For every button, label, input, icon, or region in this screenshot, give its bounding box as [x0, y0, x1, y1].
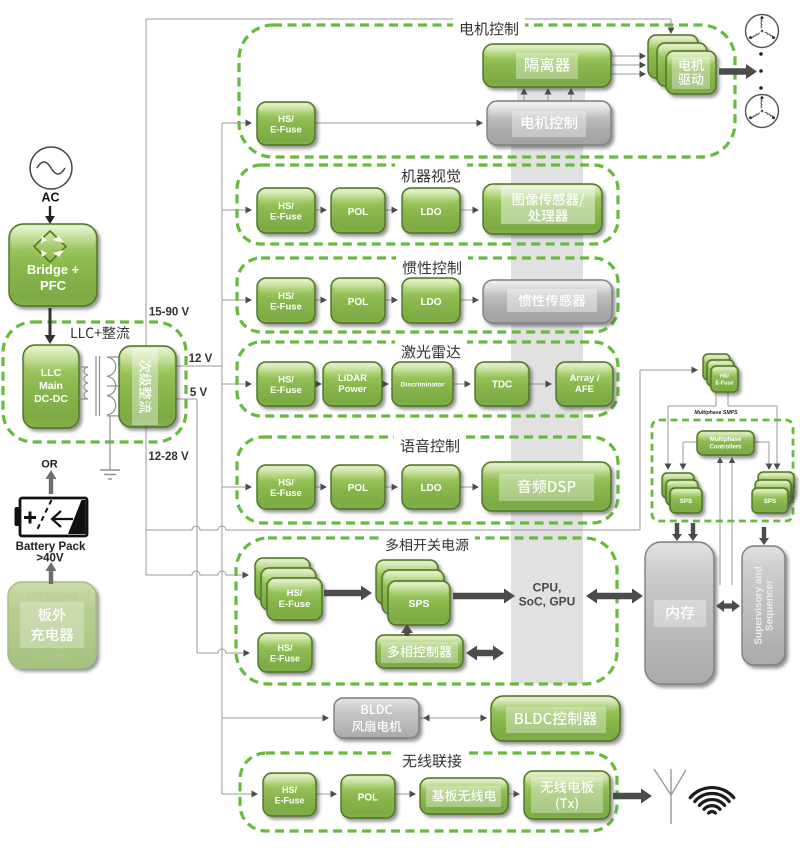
- svg-text:12-28 V: 12-28 V: [148, 451, 189, 463]
- svg-text:LDO: LDO: [420, 483, 441, 494]
- svg-text:Power: Power: [338, 384, 367, 395]
- svg-text:LDO: LDO: [420, 297, 441, 308]
- svg-text:Supervisory and: Supervisory and: [754, 566, 765, 644]
- svg-text:AFE: AFE: [575, 384, 594, 395]
- svg-text:SPS: SPS: [680, 498, 692, 505]
- svg-text:PFC: PFC: [40, 278, 67, 293]
- svg-text:12 V: 12 V: [189, 353, 213, 365]
- svg-text:SPS: SPS: [764, 498, 776, 505]
- svg-text:charger: charger: [32, 651, 73, 663]
- svg-text:POL: POL: [348, 207, 369, 218]
- svg-text:Main: Main: [39, 380, 63, 392]
- svg-text:15-90 V: 15-90 V: [149, 307, 190, 319]
- svg-text:E-Fuse: E-Fuse: [270, 385, 302, 396]
- svg-text:Array /: Array /: [569, 373, 599, 384]
- svg-text:DC-DC: DC-DC: [34, 393, 68, 405]
- svg-text:Sequencer: Sequencer: [765, 580, 776, 631]
- svg-text:HS/: HS/: [278, 375, 294, 386]
- svg-text:>40V: >40V: [36, 553, 64, 565]
- svg-text:HS/: HS/: [278, 201, 294, 212]
- svg-text:POL: POL: [348, 297, 369, 308]
- svg-text:HS/: HS/: [720, 374, 729, 380]
- svg-text:HS/: HS/: [282, 785, 298, 795]
- svg-text:Multiphase SMPS: Multiphase SMPS: [694, 410, 738, 416]
- svg-text:OR: OR: [41, 459, 58, 471]
- svg-text:AC: AC: [41, 191, 59, 205]
- svg-text:5 V: 5 V: [190, 387, 208, 399]
- svg-text:LDO: LDO: [420, 207, 441, 218]
- svg-text:HS/: HS/: [278, 114, 294, 125]
- svg-text:HS/: HS/: [278, 478, 294, 489]
- svg-text:SPS: SPS: [408, 598, 429, 610]
- svg-text:E-Fuse: E-Fuse: [270, 488, 302, 499]
- svg-text:E-Fuse: E-Fuse: [270, 125, 302, 136]
- svg-text:HS/: HS/: [287, 588, 303, 599]
- svg-text:E-Fuse: E-Fuse: [716, 381, 734, 387]
- svg-text:E-Fuse: E-Fuse: [270, 302, 302, 313]
- svg-text:CPU,: CPU,: [533, 581, 562, 595]
- svg-text:Multiphase: Multiphase: [710, 437, 742, 443]
- svg-text:Battery Pack: Battery Pack: [16, 541, 86, 553]
- svg-text:SoC, GPU: SoC, GPU: [519, 595, 576, 609]
- svg-text:Controllers: Controllers: [709, 445, 742, 451]
- svg-text:LLC: LLC: [41, 367, 62, 379]
- svg-text:POL: POL: [358, 793, 379, 804]
- svg-text:HS/: HS/: [278, 291, 294, 302]
- svg-text:E-Fuse: E-Fuse: [270, 654, 300, 664]
- svg-text:TDC: TDC: [492, 380, 513, 391]
- svg-text:HS/: HS/: [277, 643, 293, 653]
- svg-text:E-Fuse: E-Fuse: [270, 212, 302, 223]
- svg-text:Off-Board: Off-Board: [26, 591, 77, 603]
- svg-text:Bridge +: Bridge +: [27, 262, 80, 277]
- svg-text:Discriminator: Discriminator: [401, 382, 445, 389]
- svg-text:LiDAR: LiDAR: [338, 373, 367, 384]
- svg-text:E-Fuse: E-Fuse: [279, 599, 311, 610]
- svg-text:E-Fuse: E-Fuse: [274, 796, 304, 806]
- svg-text:POL: POL: [348, 483, 369, 494]
